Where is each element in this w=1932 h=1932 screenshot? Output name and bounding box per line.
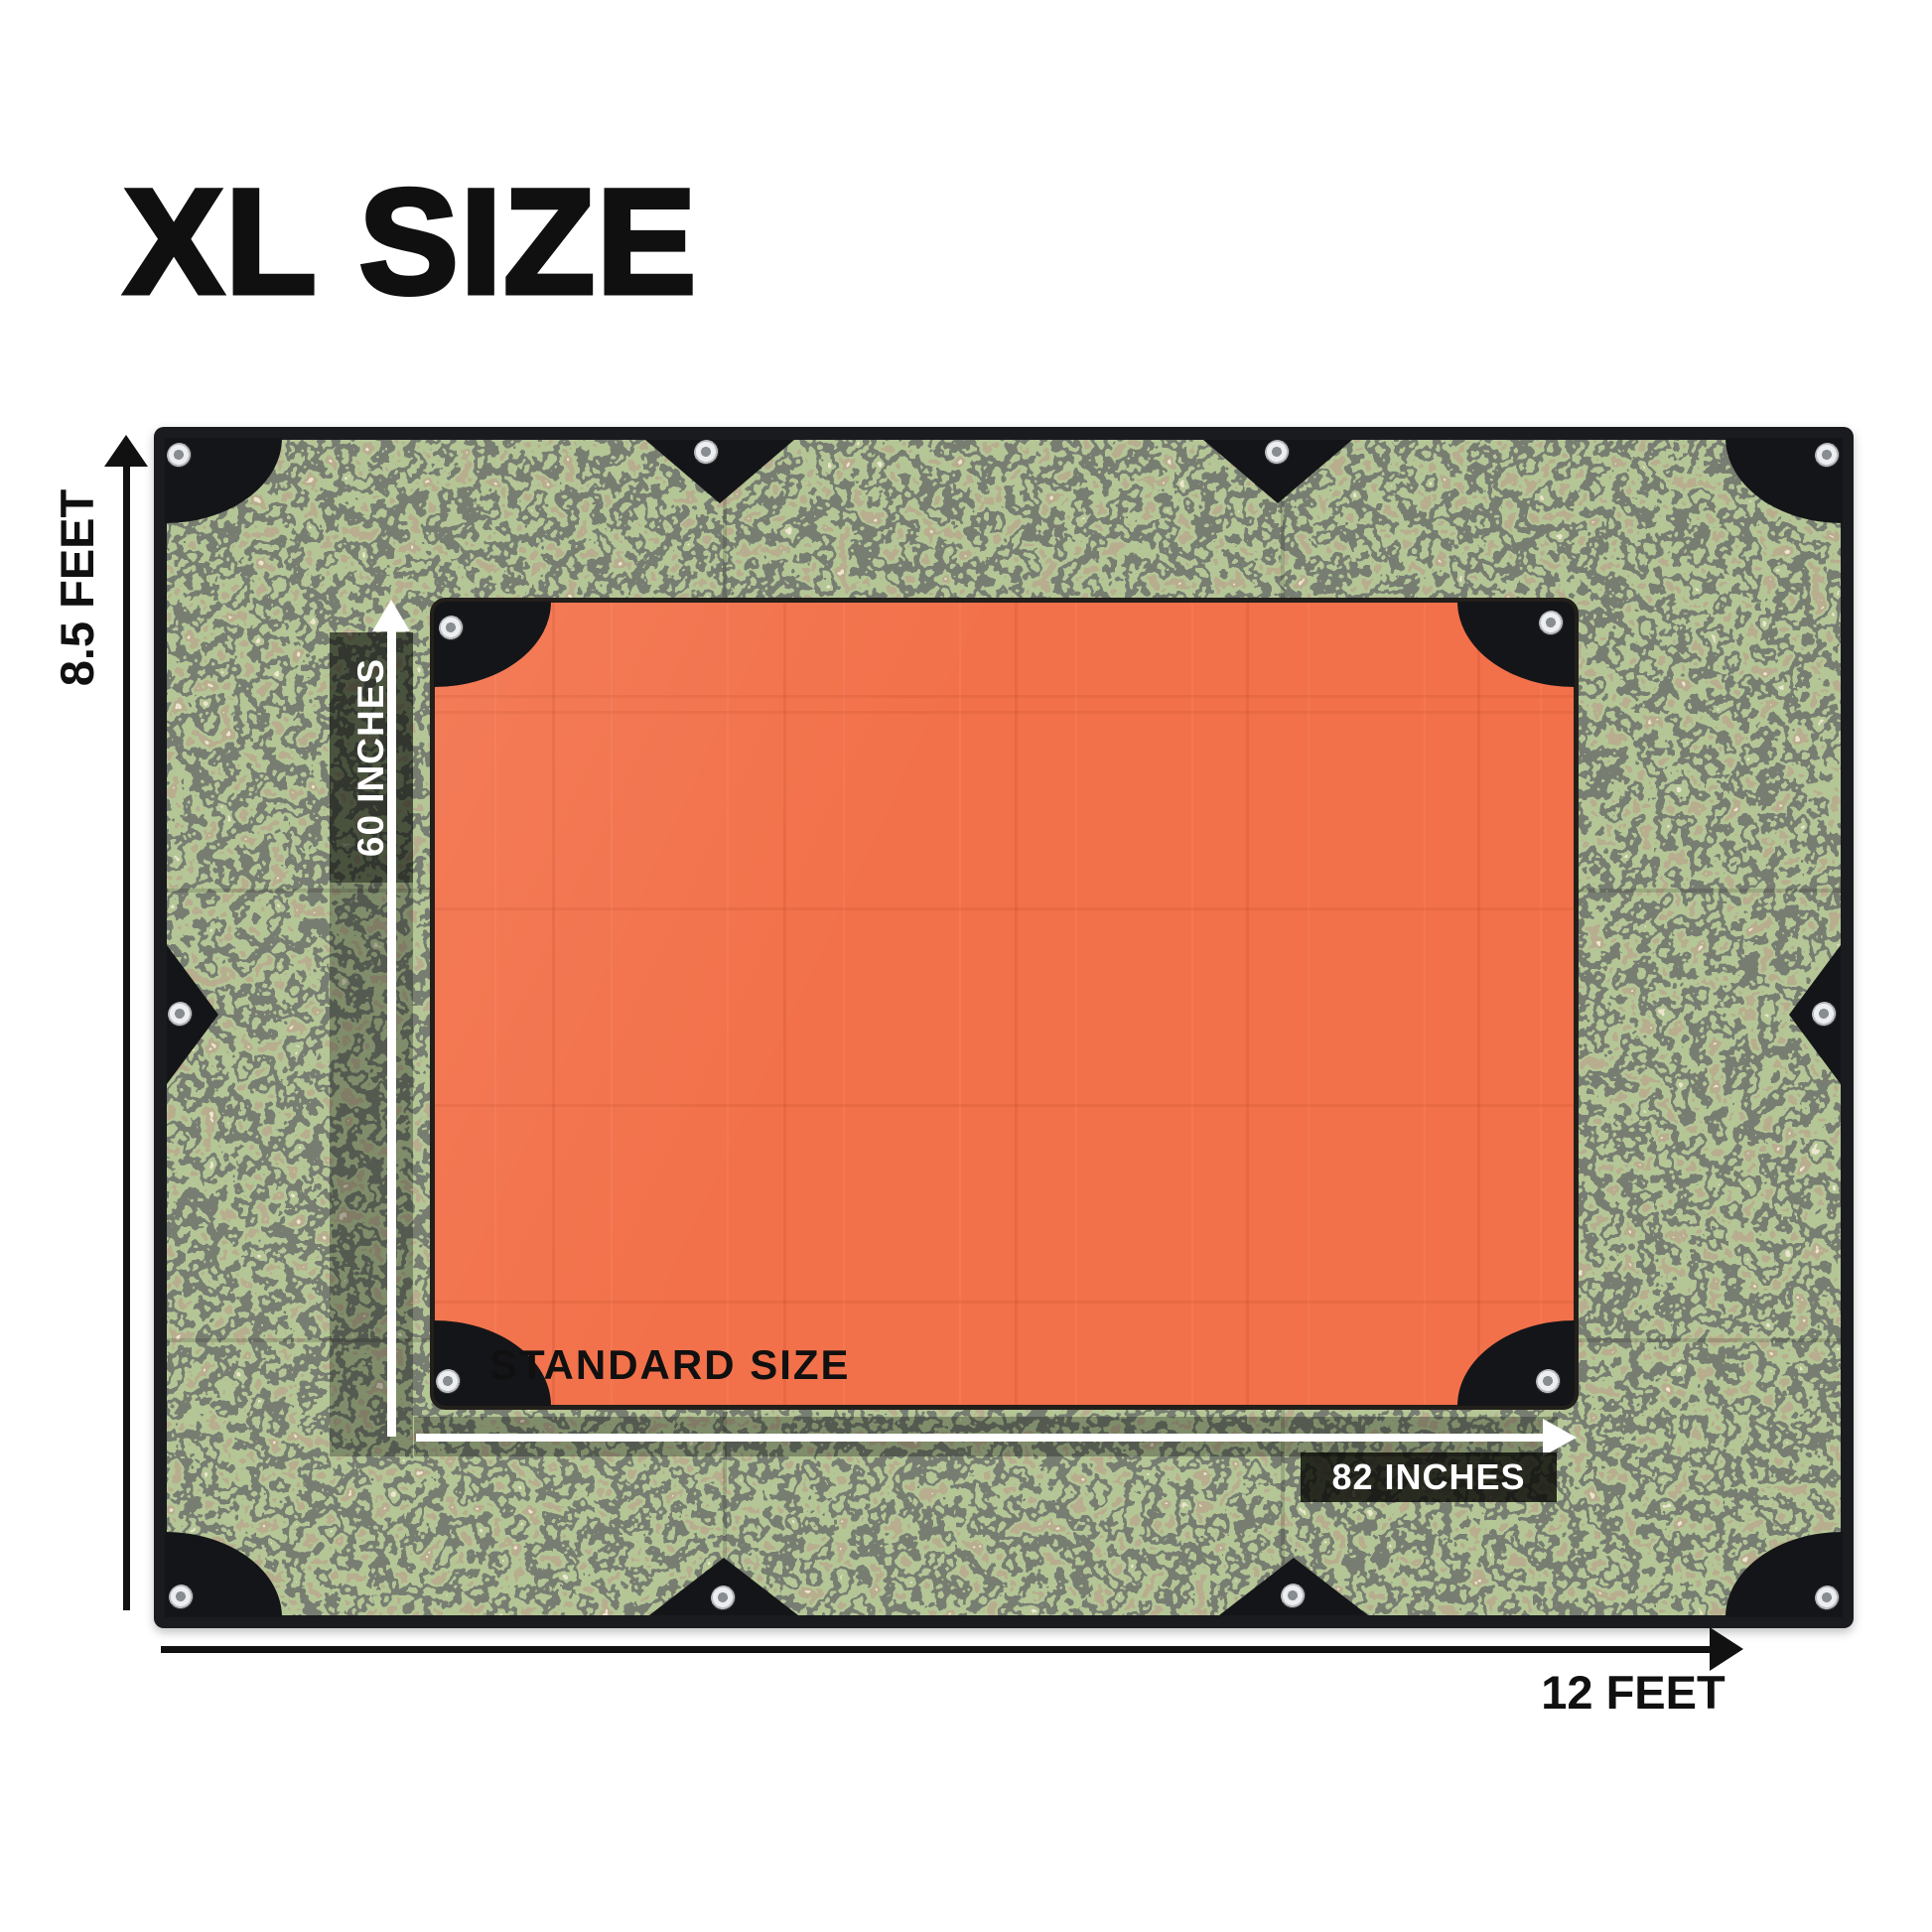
corner-patch xyxy=(1457,1320,1575,1406)
grommet-icon xyxy=(168,1002,194,1028)
page-title: XL SIZE xyxy=(124,167,698,316)
grommet-icon xyxy=(694,440,720,466)
xl-height-arrowhead xyxy=(104,435,148,467)
grommet-icon xyxy=(1815,1586,1841,1611)
grommet-icon xyxy=(1281,1584,1307,1609)
corner-patch xyxy=(434,602,551,687)
standard-width-arrowhead xyxy=(1543,1419,1577,1456)
edge-patch xyxy=(645,440,794,503)
grommet-icon xyxy=(1812,1002,1838,1028)
xl-height-label: 8.5 FEET xyxy=(53,459,102,717)
standard-height-arrowhead xyxy=(372,600,410,631)
grommet-icon xyxy=(1539,611,1565,636)
xl-height-arrow-shaft xyxy=(123,463,130,1610)
grommet-icon xyxy=(1265,440,1291,466)
grommet-icon xyxy=(1815,443,1841,469)
standard-height-label: 60 INCHES xyxy=(330,632,413,883)
standard-width-arrow-shaft xyxy=(416,1434,1548,1442)
grommet-icon xyxy=(167,443,193,469)
grommet-icon xyxy=(1536,1369,1562,1395)
grommet-icon xyxy=(169,1585,195,1610)
xl-width-arrow-shaft xyxy=(161,1646,1712,1653)
xl-width-label: 12 FEET xyxy=(1529,1668,1737,1718)
size-comparison-infographic: XL SIZE xyxy=(0,0,1932,1932)
grommet-icon xyxy=(439,616,465,641)
xl-width-arrowhead xyxy=(1710,1627,1743,1671)
standard-tarp: STANDARD SIZE xyxy=(430,598,1579,1410)
grommet-icon xyxy=(436,1369,462,1395)
grommet-icon xyxy=(711,1586,737,1611)
standard-size-label: STANDARD SIZE xyxy=(489,1341,851,1389)
standard-width-label: 82 INCHES xyxy=(1301,1452,1557,1502)
